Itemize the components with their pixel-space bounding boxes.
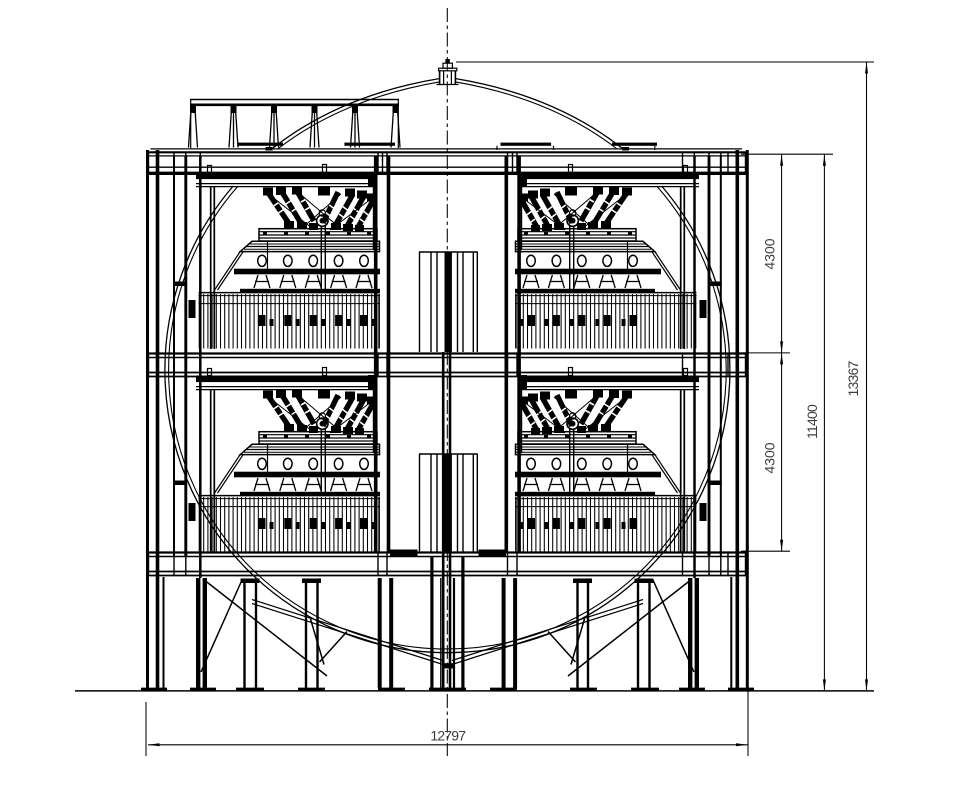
- svg-text:11400: 11400: [804, 404, 820, 439]
- svg-text:4300: 4300: [762, 442, 778, 473]
- svg-text:13367: 13367: [845, 361, 861, 397]
- svg-text:4300: 4300: [762, 238, 778, 269]
- svg-text:12797: 12797: [430, 728, 466, 744]
